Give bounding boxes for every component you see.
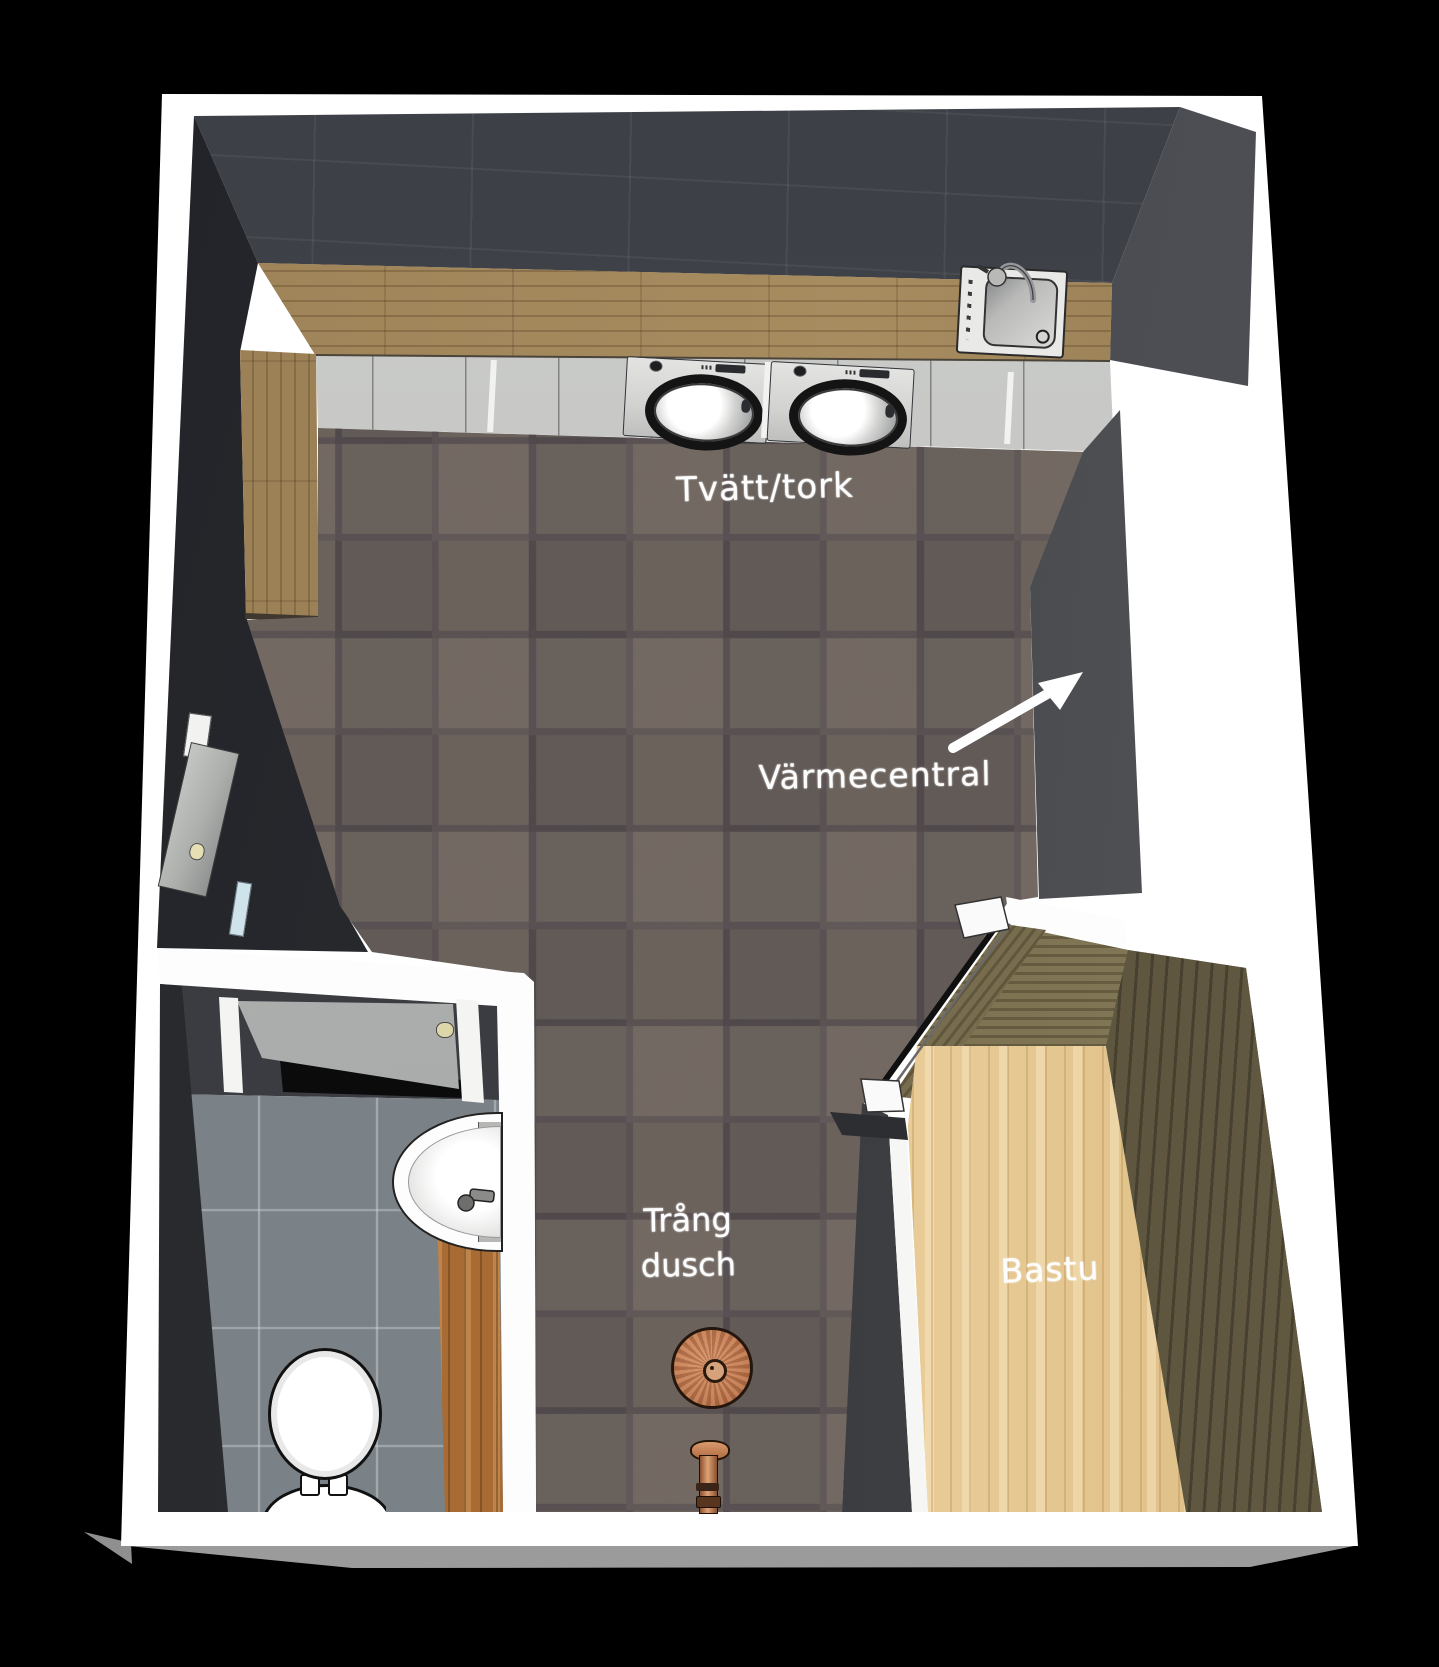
drying-machine	[767, 361, 915, 449]
toilet-lid	[268, 1348, 382, 1480]
left-door-knob	[188, 842, 206, 862]
dryer-latch	[885, 404, 895, 417]
kitchen-sink	[956, 265, 1068, 359]
floorplan-render: Tvätt/tork Värmecentral Trång dusch Bast…	[0, 0, 1439, 1667]
dryer-control-panel	[859, 369, 889, 379]
label-shower-line1: Trång	[587, 1196, 788, 1244]
sink-drainer-holes	[965, 280, 972, 340]
wc-door-knob	[436, 1022, 454, 1038]
toilet	[262, 1346, 386, 1512]
washer-control-panel	[715, 364, 745, 374]
washing-machine	[623, 356, 771, 444]
label-sauna: Bastu	[959, 1247, 1140, 1292]
shower-pipe-fitting	[696, 1483, 719, 1491]
toilet-base	[262, 1484, 386, 1512]
shower-head-hub	[703, 1359, 727, 1383]
label-laundry: Tvätt/tork	[615, 464, 916, 512]
rain-shower-head	[671, 1327, 753, 1409]
wc-sink-basin	[408, 1126, 501, 1238]
label-shower-line2: dusch	[588, 1241, 789, 1289]
dryer-dial	[793, 365, 807, 377]
washer-dial	[649, 360, 663, 372]
washer-latch	[741, 399, 751, 412]
shower-pipe-fitting	[696, 1496, 721, 1508]
label-shower: Trång dusch	[587, 1196, 789, 1289]
label-heating: Värmecentral	[725, 753, 1026, 797]
